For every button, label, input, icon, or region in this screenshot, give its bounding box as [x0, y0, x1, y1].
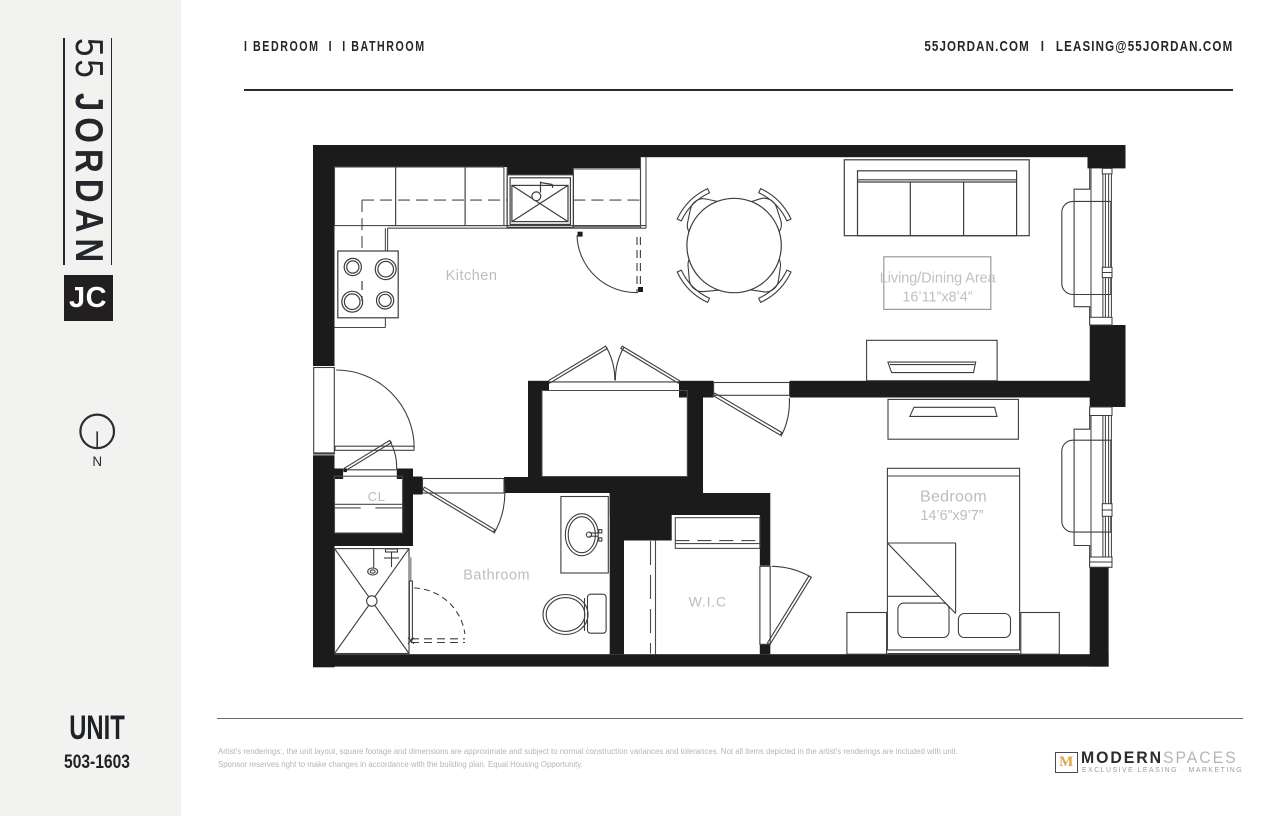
svg-text:Bathroom: Bathroom: [463, 568, 530, 584]
svg-text:Living/Dining Area: Living/Dining Area: [880, 271, 996, 287]
svg-text:Bedroom: Bedroom: [920, 489, 987, 506]
svg-text:W.I.C: W.I.C: [689, 594, 727, 610]
svg-text:16’11”x8’4”: 16’11”x8’4”: [902, 290, 972, 306]
svg-text:Kitchen: Kitchen: [446, 268, 498, 284]
svg-text:CL: CL: [368, 489, 386, 504]
svg-text:14’6”x9’7”: 14’6”x9’7”: [920, 508, 983, 524]
